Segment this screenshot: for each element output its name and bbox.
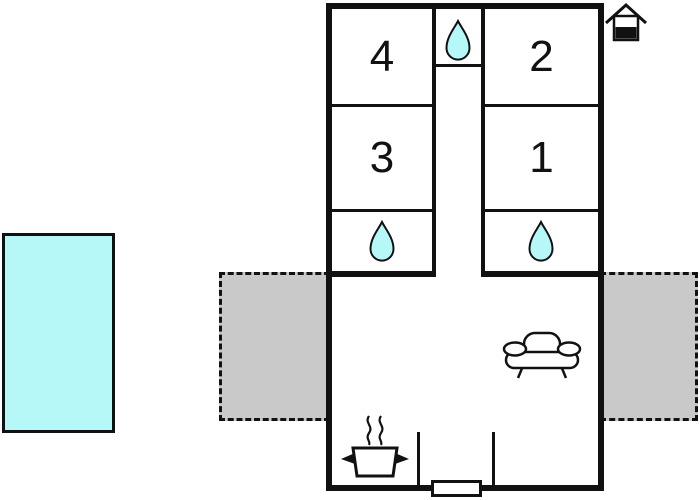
water-drop-icon-wc <box>445 19 471 61</box>
terrace-right <box>600 272 698 421</box>
room-3-label: 3 <box>332 107 432 209</box>
room-number: 3 <box>370 136 394 180</box>
room-number: 2 <box>529 35 553 79</box>
wall-corridor-left <box>432 9 436 272</box>
room-4-label: 4 <box>332 9 432 104</box>
water-drop-icon-bath-right <box>528 220 554 262</box>
swimming-pool <box>2 233 115 433</box>
wall-bath-left-top <box>332 209 432 212</box>
room-number: 1 <box>529 136 553 180</box>
room-number: 4 <box>370 35 394 79</box>
entrance-door <box>431 480 482 497</box>
house-north-icon <box>604 2 648 42</box>
room-1-label: 1 <box>485 107 598 209</box>
wall-entry-stub-right <box>492 432 495 485</box>
wall-bath-right-bottom <box>481 271 604 277</box>
wall-wc-bottom <box>436 64 481 67</box>
water-drop-icon-bath-left <box>369 220 395 262</box>
terrace-left <box>219 272 330 421</box>
wall-bath-left-bottom <box>326 271 436 277</box>
stove-icon <box>338 414 412 480</box>
floor-plan: 4 2 3 1 <box>0 0 700 500</box>
wall-outer-right <box>598 3 604 491</box>
wall-entry-stub-left <box>417 432 420 485</box>
wall-bath-right-top <box>485 209 598 212</box>
sofa-icon <box>502 328 582 380</box>
room-2-label: 2 <box>485 9 598 104</box>
